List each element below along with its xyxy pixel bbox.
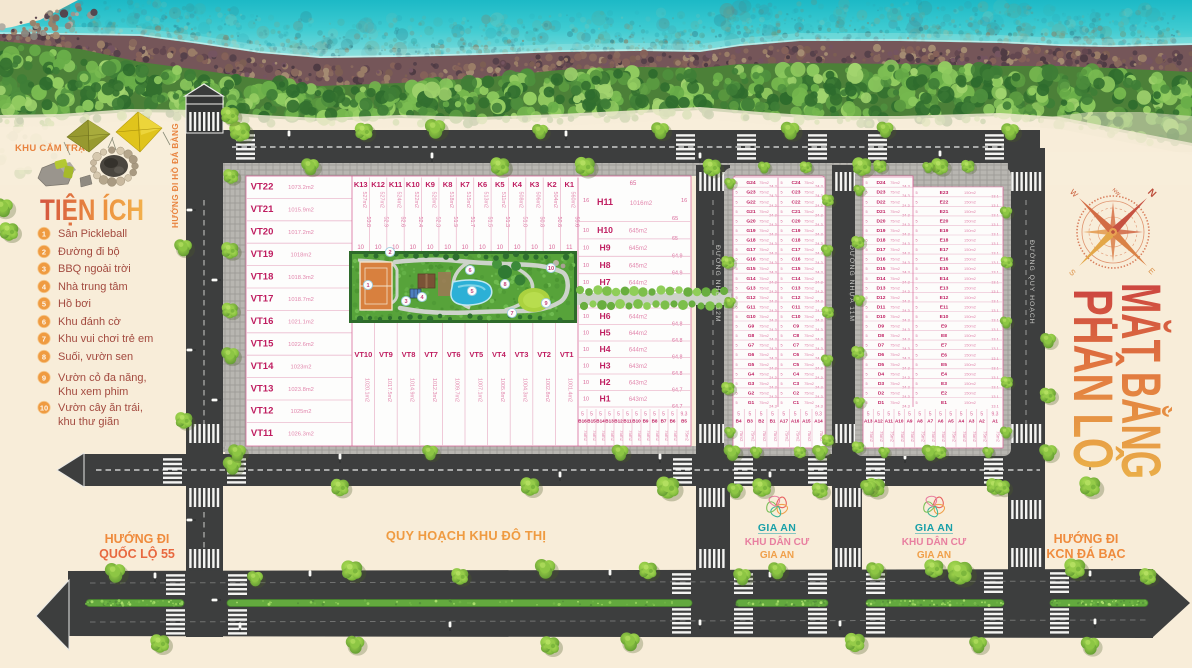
svg-text:5: 5 xyxy=(887,412,890,418)
svg-text:24.3: 24.3 xyxy=(815,233,822,237)
svg-text:24.3: 24.3 xyxy=(815,213,822,217)
svg-text:13.1: 13.1 xyxy=(991,366,998,370)
svg-text:5: 5 xyxy=(949,412,952,418)
svg-text:5: 5 xyxy=(780,267,782,271)
svg-text:5: 5 xyxy=(929,412,932,418)
svg-text:2: 2 xyxy=(388,250,391,256)
svg-text:150m2: 150m2 xyxy=(964,343,976,348)
svg-text:24.3: 24.3 xyxy=(769,385,776,389)
svg-text:5: 5 xyxy=(865,382,867,386)
svg-text:E22: E22 xyxy=(940,199,949,205)
svg-text:24.3: 24.3 xyxy=(815,185,822,189)
svg-text:75m2: 75m2 xyxy=(804,352,814,357)
svg-text:5: 5 xyxy=(617,412,620,418)
svg-text:C22: C22 xyxy=(792,199,801,205)
svg-text:24.3: 24.3 xyxy=(769,242,776,246)
svg-text:5: 5 xyxy=(735,315,737,319)
svg-text:24.3: 24.3 xyxy=(902,385,909,389)
svg-text:1025m2: 1025m2 xyxy=(291,409,312,415)
svg-text:VT7: VT7 xyxy=(424,350,438,359)
svg-text:5: 5 xyxy=(780,305,782,309)
svg-text:5: 5 xyxy=(865,305,867,309)
svg-text:A17: A17 xyxy=(780,419,789,424)
svg-text:5: 5 xyxy=(865,181,867,185)
svg-text:24.3: 24.3 xyxy=(902,376,909,380)
svg-text:24.3: 24.3 xyxy=(815,204,822,208)
svg-text:75m2: 75m2 xyxy=(890,343,900,348)
svg-text:5: 5 xyxy=(915,258,917,262)
svg-text:VT4: VT4 xyxy=(492,350,507,359)
svg-text:5: 5 xyxy=(771,412,774,418)
svg-text:B6: B6 xyxy=(670,419,676,424)
svg-text:24.3: 24.3 xyxy=(815,385,822,389)
svg-text:5: 5 xyxy=(915,401,917,405)
svg-text:G9: G9 xyxy=(748,324,755,330)
svg-text:5: 5 xyxy=(735,248,737,252)
svg-text:53.0: 53.0 xyxy=(365,217,371,228)
svg-text:GIA AN: GIA AN xyxy=(917,550,951,561)
svg-text:560m2: 560m2 xyxy=(570,192,576,208)
svg-text:C3: C3 xyxy=(793,381,800,387)
svg-text:52.9: 52.9 xyxy=(382,217,388,228)
svg-text:VT5: VT5 xyxy=(469,350,483,359)
svg-text:13.1: 13.1 xyxy=(991,405,998,409)
svg-text:5: 5 xyxy=(780,229,782,233)
svg-text:24.3: 24.3 xyxy=(769,319,776,323)
svg-text:24.3: 24.3 xyxy=(902,299,909,303)
svg-text:D1: D1 xyxy=(878,400,885,406)
svg-text:75m2: 75m2 xyxy=(759,209,769,214)
svg-text:5: 5 xyxy=(915,286,917,290)
svg-text:G21: G21 xyxy=(746,209,756,215)
svg-text:E13: E13 xyxy=(940,285,949,291)
svg-text:150m2: 150m2 xyxy=(964,381,976,386)
svg-text:5: 5 xyxy=(780,200,782,204)
svg-text:10: 10 xyxy=(583,380,589,386)
svg-text:75m2: 75m2 xyxy=(804,209,814,214)
svg-text:75m2: 75m2 xyxy=(759,247,769,252)
svg-text:75m2: 75m2 xyxy=(759,295,769,300)
svg-text:24.3: 24.3 xyxy=(902,366,909,370)
svg-text:513m2: 513m2 xyxy=(483,192,489,208)
svg-text:150m2: 150m2 xyxy=(964,352,976,357)
svg-text:5: 5 xyxy=(782,412,785,418)
svg-text:24.3: 24.3 xyxy=(902,280,909,284)
svg-text:A8: A8 xyxy=(917,419,923,424)
svg-text:H9: H9 xyxy=(600,242,611,252)
svg-text:24.3: 24.3 xyxy=(769,204,776,208)
svg-text:5: 5 xyxy=(780,353,782,357)
svg-text:E1: E1 xyxy=(941,400,947,406)
svg-text:B11: B11 xyxy=(623,419,632,424)
svg-text:VT16: VT16 xyxy=(251,316,274,327)
svg-text:150m2: 150m2 xyxy=(964,209,976,214)
svg-text:24.3: 24.3 xyxy=(902,395,909,399)
svg-text:75m2: 75m2 xyxy=(804,371,814,376)
svg-text:5: 5 xyxy=(865,334,867,338)
svg-text:5: 5 xyxy=(735,229,737,233)
svg-text:13.1: 13.1 xyxy=(991,223,998,227)
svg-text:24.3: 24.3 xyxy=(815,271,822,275)
svg-text:5: 5 xyxy=(780,286,782,290)
svg-text:5: 5 xyxy=(780,239,782,243)
svg-text:1: 1 xyxy=(366,283,369,289)
svg-text:H5: H5 xyxy=(600,328,611,338)
svg-text:G14: G14 xyxy=(746,276,756,282)
svg-text:H11: H11 xyxy=(597,197,613,207)
svg-text:E6: E6 xyxy=(941,352,947,358)
svg-text:VT3: VT3 xyxy=(515,350,529,359)
svg-text:D23: D23 xyxy=(877,190,886,196)
svg-text:1017.5m2: 1017.5m2 xyxy=(386,378,392,402)
svg-text:E9: E9 xyxy=(941,324,947,330)
svg-text:5: 5 xyxy=(865,267,867,271)
svg-text:13.1: 13.1 xyxy=(991,290,998,294)
svg-text:527m2: 527m2 xyxy=(378,192,384,208)
svg-text:75m2: 75m2 xyxy=(759,343,769,348)
svg-text:K13: K13 xyxy=(354,180,368,189)
svg-text:G18: G18 xyxy=(746,238,756,244)
svg-text:518m2: 518m2 xyxy=(448,192,454,208)
svg-text:2: 2 xyxy=(42,247,46,256)
svg-text:150m2: 150m2 xyxy=(964,266,976,271)
svg-text:D22: D22 xyxy=(877,199,886,205)
svg-text:K4: K4 xyxy=(512,180,522,189)
svg-text:24.3: 24.3 xyxy=(769,290,776,294)
svg-text:522m2: 522m2 xyxy=(413,192,419,208)
svg-text:75m2: 75m2 xyxy=(804,333,814,338)
svg-text:VT9: VT9 xyxy=(379,350,393,359)
svg-text:D24: D24 xyxy=(877,180,886,186)
svg-text:C1: C1 xyxy=(793,400,800,406)
svg-text:BBQ ngoài trời: BBQ ngoài trời xyxy=(58,263,131,275)
svg-text:10: 10 xyxy=(583,280,589,286)
svg-text:75m2: 75m2 xyxy=(890,180,900,185)
svg-text:13.1: 13.1 xyxy=(991,280,998,284)
svg-text:K3: K3 xyxy=(530,180,540,189)
svg-text:75m2: 75m2 xyxy=(807,431,812,443)
svg-text:5: 5 xyxy=(865,363,867,367)
svg-text:5: 5 xyxy=(877,412,880,418)
svg-text:75m2: 75m2 xyxy=(759,276,769,281)
svg-text:Vườn cây ăn trái,: Vườn cây ăn trái, xyxy=(58,402,143,414)
svg-text:A12: A12 xyxy=(874,419,883,424)
svg-text:5: 5 xyxy=(915,220,917,224)
svg-text:24.3: 24.3 xyxy=(815,290,822,294)
svg-text:D21: D21 xyxy=(877,209,886,215)
svg-text:10: 10 xyxy=(583,245,589,251)
svg-text:B15: B15 xyxy=(587,419,596,424)
svg-text:150m2: 150m2 xyxy=(964,228,976,233)
svg-text:C23: C23 xyxy=(792,190,801,196)
svg-text:A2: A2 xyxy=(979,419,985,424)
svg-text:75m2: 75m2 xyxy=(890,295,900,300)
svg-text:G4: G4 xyxy=(748,371,755,377)
svg-text:E3: E3 xyxy=(941,381,947,387)
svg-text:VT21: VT21 xyxy=(251,204,274,215)
svg-text:75m2: 75m2 xyxy=(685,430,690,442)
svg-text:75m2: 75m2 xyxy=(804,285,814,290)
svg-text:24.3: 24.3 xyxy=(769,338,776,342)
svg-text:A15: A15 xyxy=(802,419,811,424)
svg-text:D12: D12 xyxy=(877,295,886,301)
svg-text:D11: D11 xyxy=(877,304,886,310)
svg-text:khu thư giãn: khu thư giãn xyxy=(58,416,119,428)
svg-text:A1: A1 xyxy=(992,419,998,424)
svg-text:E23: E23 xyxy=(940,190,949,196)
svg-text:5: 5 xyxy=(735,353,737,357)
svg-text:C2: C2 xyxy=(793,391,800,397)
svg-text:G24: G24 xyxy=(746,180,756,186)
svg-text:5: 5 xyxy=(980,412,983,418)
svg-text:75m2: 75m2 xyxy=(759,228,769,233)
svg-text:B5: B5 xyxy=(681,419,687,424)
svg-text:150m2: 150m2 xyxy=(964,199,976,204)
svg-text:13.1: 13.1 xyxy=(991,376,998,380)
svg-text:A10: A10 xyxy=(895,419,904,424)
svg-text:Đường đi bộ: Đường đi bộ xyxy=(58,246,120,258)
svg-text:150m2: 150m2 xyxy=(964,400,976,405)
svg-text:G7: G7 xyxy=(748,343,755,349)
svg-text:5: 5 xyxy=(735,200,737,204)
svg-text:1015.9m2: 1015.9m2 xyxy=(288,208,314,214)
svg-text:24.3: 24.3 xyxy=(815,366,822,370)
svg-text:1018m2: 1018m2 xyxy=(291,252,312,258)
svg-text:B16: B16 xyxy=(578,419,587,424)
svg-text:G8: G8 xyxy=(748,333,755,339)
svg-text:75m2: 75m2 xyxy=(804,304,814,309)
svg-text:E15: E15 xyxy=(940,266,949,272)
svg-text:E16: E16 xyxy=(940,257,949,263)
svg-text:75m2: 75m2 xyxy=(759,400,769,405)
svg-text:5: 5 xyxy=(735,401,737,405)
svg-text:5: 5 xyxy=(780,401,782,405)
svg-text:A5: A5 xyxy=(948,419,954,424)
svg-text:24.3: 24.3 xyxy=(769,376,776,380)
svg-text:24.3: 24.3 xyxy=(815,261,822,265)
svg-text:C19: C19 xyxy=(792,228,801,234)
svg-text:8: 8 xyxy=(42,352,46,361)
svg-text:5: 5 xyxy=(915,344,917,348)
svg-text:D17: D17 xyxy=(877,247,886,253)
svg-text:VT20: VT20 xyxy=(251,227,274,238)
svg-text:75m2: 75m2 xyxy=(890,304,900,309)
svg-text:C8: C8 xyxy=(793,333,800,339)
svg-text:5: 5 xyxy=(735,363,737,367)
svg-text:10: 10 xyxy=(514,245,521,251)
svg-text:5: 5 xyxy=(915,306,917,310)
svg-text:24.3: 24.3 xyxy=(902,261,909,265)
svg-text:75m2: 75m2 xyxy=(890,218,900,223)
svg-text:13.1: 13.1 xyxy=(991,319,998,323)
svg-text:75m2: 75m2 xyxy=(890,400,900,405)
svg-text:16: 16 xyxy=(681,198,687,204)
svg-text:E20: E20 xyxy=(940,219,949,225)
svg-text:KHU CẮM TRẠI: KHU CẮM TRẠI xyxy=(15,143,88,154)
svg-text:75m2: 75m2 xyxy=(759,180,769,185)
svg-text:24.3: 24.3 xyxy=(902,233,909,237)
svg-text:75m2: 75m2 xyxy=(759,333,769,338)
svg-text:75m2: 75m2 xyxy=(890,362,900,367)
svg-text:24.3: 24.3 xyxy=(769,347,776,351)
svg-text:9: 9 xyxy=(544,301,547,307)
svg-text:75m2: 75m2 xyxy=(804,324,814,329)
svg-text:ĐƯỜNG QUY HOẠCH: ĐƯỜNG QUY HOẠCH xyxy=(1028,240,1037,325)
svg-text:5: 5 xyxy=(898,412,901,418)
svg-text:10: 10 xyxy=(462,245,469,251)
svg-text:A3: A3 xyxy=(969,419,975,424)
svg-text:1023.8m2: 1023.8m2 xyxy=(288,387,314,393)
svg-text:D2: D2 xyxy=(878,391,885,397)
svg-text:5: 5 xyxy=(970,412,973,418)
svg-text:D7: D7 xyxy=(878,343,885,349)
svg-text:D4: D4 xyxy=(878,371,885,377)
svg-text:75m2: 75m2 xyxy=(890,285,900,290)
svg-text:75m2: 75m2 xyxy=(784,431,789,443)
svg-text:C20: C20 xyxy=(792,218,801,224)
svg-text:G2: G2 xyxy=(748,391,755,397)
svg-text:VT19: VT19 xyxy=(251,249,274,260)
svg-text:A4: A4 xyxy=(958,419,964,424)
svg-text:5: 5 xyxy=(805,412,808,418)
svg-text:75m2: 75m2 xyxy=(759,381,769,386)
svg-text:3: 3 xyxy=(404,299,407,305)
svg-text:K1: K1 xyxy=(565,180,575,189)
svg-text:5: 5 xyxy=(915,239,917,243)
svg-text:24.3: 24.3 xyxy=(815,338,822,342)
svg-text:9.3: 9.3 xyxy=(815,412,822,418)
svg-text:75m2: 75m2 xyxy=(759,266,769,271)
svg-text:75m2: 75m2 xyxy=(804,190,814,195)
svg-text:13.1: 13.1 xyxy=(991,233,998,237)
svg-text:E5: E5 xyxy=(941,362,947,368)
svg-text:13.1: 13.1 xyxy=(991,347,998,351)
svg-text:C12: C12 xyxy=(792,295,801,301)
svg-text:5: 5 xyxy=(644,412,647,418)
svg-text:5: 5 xyxy=(653,412,656,418)
svg-text:24.3: 24.3 xyxy=(902,194,909,198)
svg-text:24.3: 24.3 xyxy=(769,405,776,409)
svg-text:1022.6m2: 1022.6m2 xyxy=(288,342,314,348)
svg-text:C5: C5 xyxy=(793,362,800,368)
svg-text:1014.9m2: 1014.9m2 xyxy=(409,378,415,402)
svg-text:75m2: 75m2 xyxy=(759,285,769,290)
svg-text:75m2: 75m2 xyxy=(759,218,769,223)
svg-text:D10: D10 xyxy=(877,314,886,320)
svg-text:51.5: 51.5 xyxy=(487,217,493,228)
svg-text:10: 10 xyxy=(357,245,364,251)
svg-text:75m2: 75m2 xyxy=(773,431,778,443)
svg-text:75m2: 75m2 xyxy=(804,400,814,405)
svg-text:5: 5 xyxy=(780,315,782,319)
svg-text:75m2: 75m2 xyxy=(890,209,900,214)
svg-text:24.3: 24.3 xyxy=(815,309,822,313)
svg-text:B4: B4 xyxy=(736,419,742,424)
svg-text:75m2: 75m2 xyxy=(910,431,915,443)
svg-text:75m2: 75m2 xyxy=(759,314,769,319)
svg-text:G3: G3 xyxy=(748,381,755,387)
svg-text:Vườn cỏ đa năng,: Vườn cỏ đa năng, xyxy=(58,372,147,384)
svg-text:13.1: 13.1 xyxy=(991,395,998,399)
svg-text:H10: H10 xyxy=(597,225,613,235)
svg-text:75m2: 75m2 xyxy=(804,276,814,281)
svg-text:A13: A13 xyxy=(864,419,873,424)
svg-text:10: 10 xyxy=(409,245,416,251)
svg-text:24.3: 24.3 xyxy=(769,395,776,399)
svg-text:B9: B9 xyxy=(643,419,649,424)
svg-text:E18: E18 xyxy=(940,238,949,244)
svg-text:KHU DÂN CƯ: KHU DÂN CƯ xyxy=(902,535,967,548)
svg-text:TIỆN ÍCH: TIỆN ÍCH xyxy=(40,193,144,227)
svg-text:K2: K2 xyxy=(547,180,557,189)
svg-text:H1: H1 xyxy=(600,394,611,404)
svg-text:75m2: 75m2 xyxy=(804,343,814,348)
svg-text:75m2: 75m2 xyxy=(739,431,744,443)
svg-text:5: 5 xyxy=(735,277,737,281)
svg-text:644m2: 644m2 xyxy=(629,281,648,287)
svg-text:1026.3m2: 1026.3m2 xyxy=(288,432,314,438)
svg-text:C6: C6 xyxy=(793,352,800,358)
svg-text:5: 5 xyxy=(915,334,917,338)
svg-text:E12: E12 xyxy=(940,295,949,301)
svg-text:75m2: 75m2 xyxy=(759,391,769,396)
svg-text:QUỐC LỘ 55: QUỐC LỘ 55 xyxy=(99,546,175,561)
svg-text:5: 5 xyxy=(42,299,46,308)
svg-text:5: 5 xyxy=(915,210,917,214)
svg-text:VT11: VT11 xyxy=(251,428,274,439)
svg-text:24.3: 24.3 xyxy=(902,185,909,189)
svg-text:1: 1 xyxy=(42,229,46,238)
svg-text:24.3: 24.3 xyxy=(902,242,909,246)
svg-text:24.3: 24.3 xyxy=(769,194,776,198)
svg-text:G23: G23 xyxy=(746,190,756,196)
svg-text:75m2: 75m2 xyxy=(890,352,900,357)
svg-text:5: 5 xyxy=(780,325,782,329)
svg-text:10: 10 xyxy=(583,364,589,370)
svg-text:150m2: 150m2 xyxy=(964,362,976,367)
svg-text:150m2: 150m2 xyxy=(964,276,976,281)
svg-text:643m2: 643m2 xyxy=(629,364,648,370)
svg-text:VT10: VT10 xyxy=(354,350,372,359)
svg-text:K11: K11 xyxy=(389,180,402,189)
svg-text:K7: K7 xyxy=(460,180,470,189)
svg-text:24.3: 24.3 xyxy=(815,252,822,256)
svg-text:9.3: 9.3 xyxy=(992,412,999,418)
svg-text:75m2: 75m2 xyxy=(890,228,900,233)
svg-text:1073.2m2: 1073.2m2 xyxy=(288,185,314,191)
svg-text:24.3: 24.3 xyxy=(815,194,822,198)
svg-text:24.3: 24.3 xyxy=(815,223,822,227)
svg-text:515m2: 515m2 xyxy=(465,192,471,208)
svg-text:VT15: VT15 xyxy=(251,339,274,350)
svg-text:75m2: 75m2 xyxy=(804,180,814,185)
svg-text:75m2: 75m2 xyxy=(890,190,900,195)
svg-text:10: 10 xyxy=(549,245,556,251)
svg-text:VT8: VT8 xyxy=(402,350,416,359)
svg-text:B3: B3 xyxy=(747,419,753,424)
svg-text:VT13: VT13 xyxy=(251,383,274,394)
svg-text:PHÂN LÔ: PHÂN LÔ xyxy=(1062,289,1125,469)
svg-text:511m2: 511m2 xyxy=(500,192,506,208)
svg-text:24.3: 24.3 xyxy=(769,309,776,313)
svg-text:5: 5 xyxy=(780,258,782,262)
svg-text:24.3: 24.3 xyxy=(902,319,909,323)
svg-text:10: 10 xyxy=(375,245,382,251)
svg-text:10: 10 xyxy=(479,245,486,251)
svg-text:K8: K8 xyxy=(443,180,453,189)
svg-text:1023m2: 1023m2 xyxy=(291,364,312,370)
svg-text:5: 5 xyxy=(908,412,911,418)
